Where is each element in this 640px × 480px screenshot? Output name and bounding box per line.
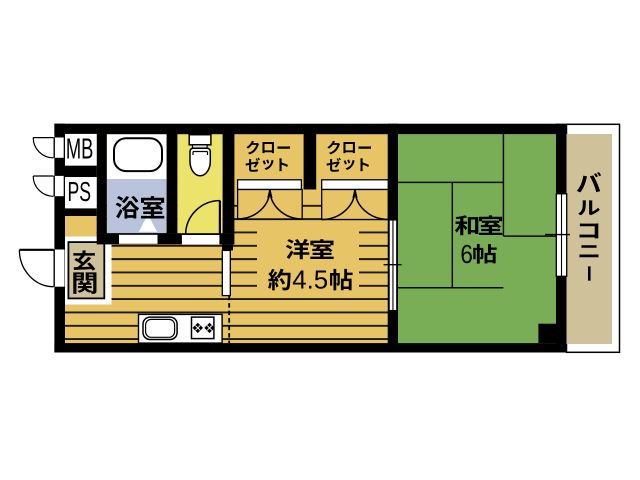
svg-text:MB: MB <box>66 133 94 165</box>
svg-text:4.5: 4.5 <box>292 265 328 295</box>
svg-text:PS: PS <box>68 176 92 207</box>
svg-text:6: 6 <box>460 239 473 269</box>
